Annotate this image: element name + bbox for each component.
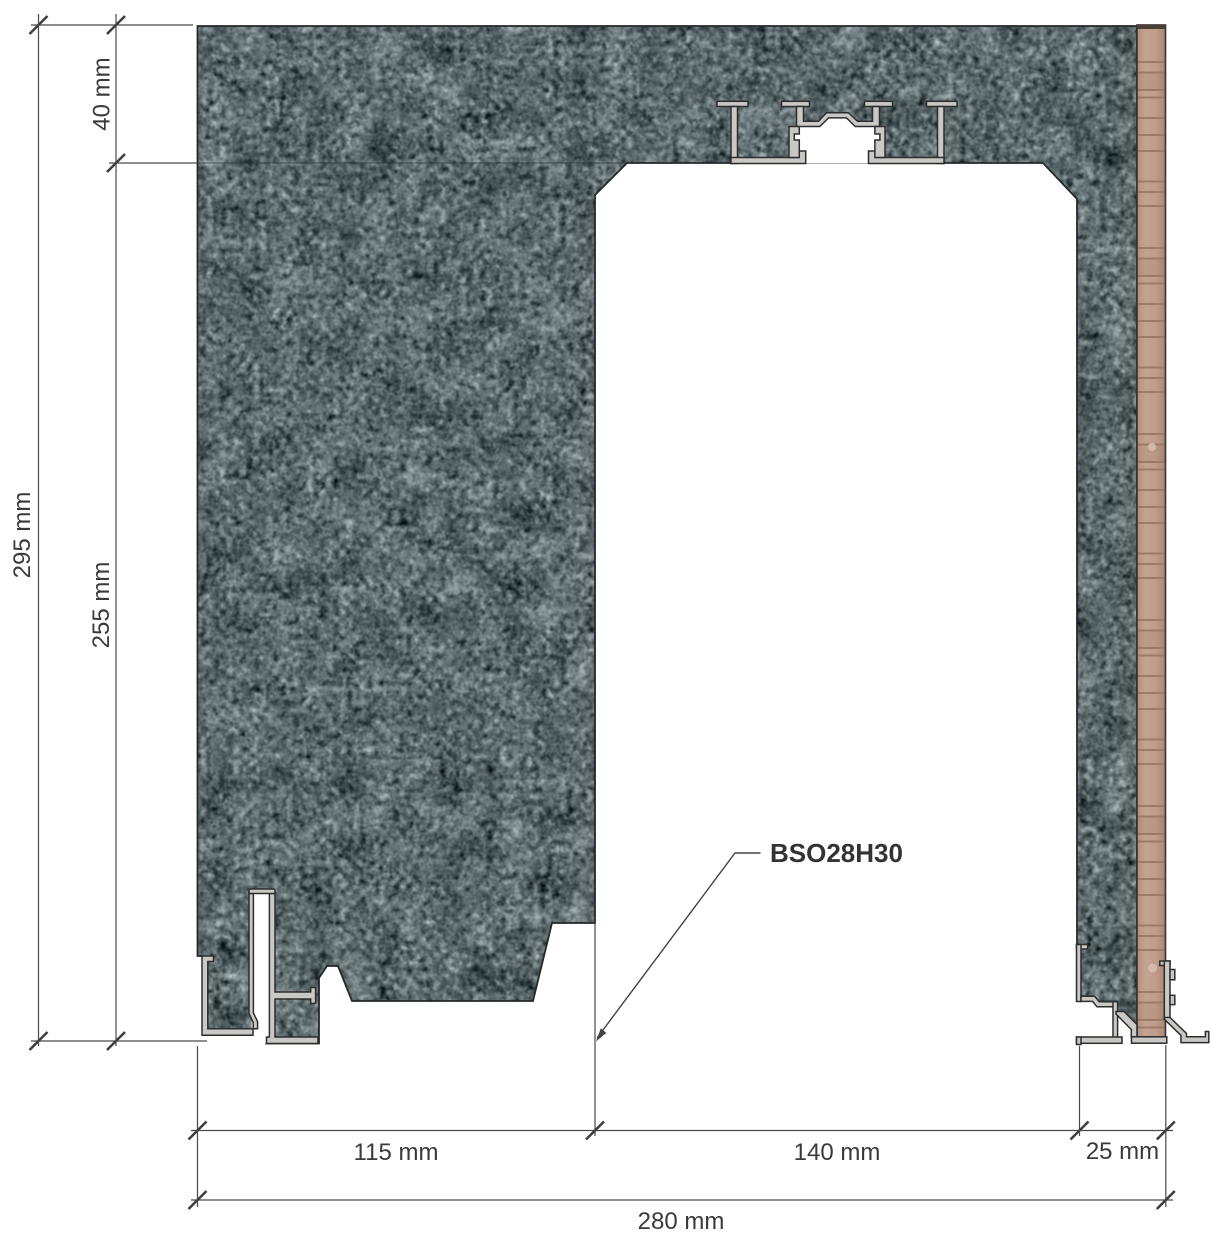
svg-text:BSO28H30: BSO28H30 — [770, 838, 903, 868]
svg-text:295 mm: 295 mm — [9, 492, 36, 579]
svg-text:25 mm: 25 mm — [1086, 1138, 1159, 1165]
svg-text:140 mm: 140 mm — [794, 1139, 881, 1166]
svg-text:255 mm: 255 mm — [88, 562, 115, 649]
svg-text:40 mm: 40 mm — [89, 57, 116, 130]
svg-text:115 mm: 115 mm — [354, 1139, 439, 1166]
svg-text:280 mm: 280 mm — [638, 1208, 725, 1235]
